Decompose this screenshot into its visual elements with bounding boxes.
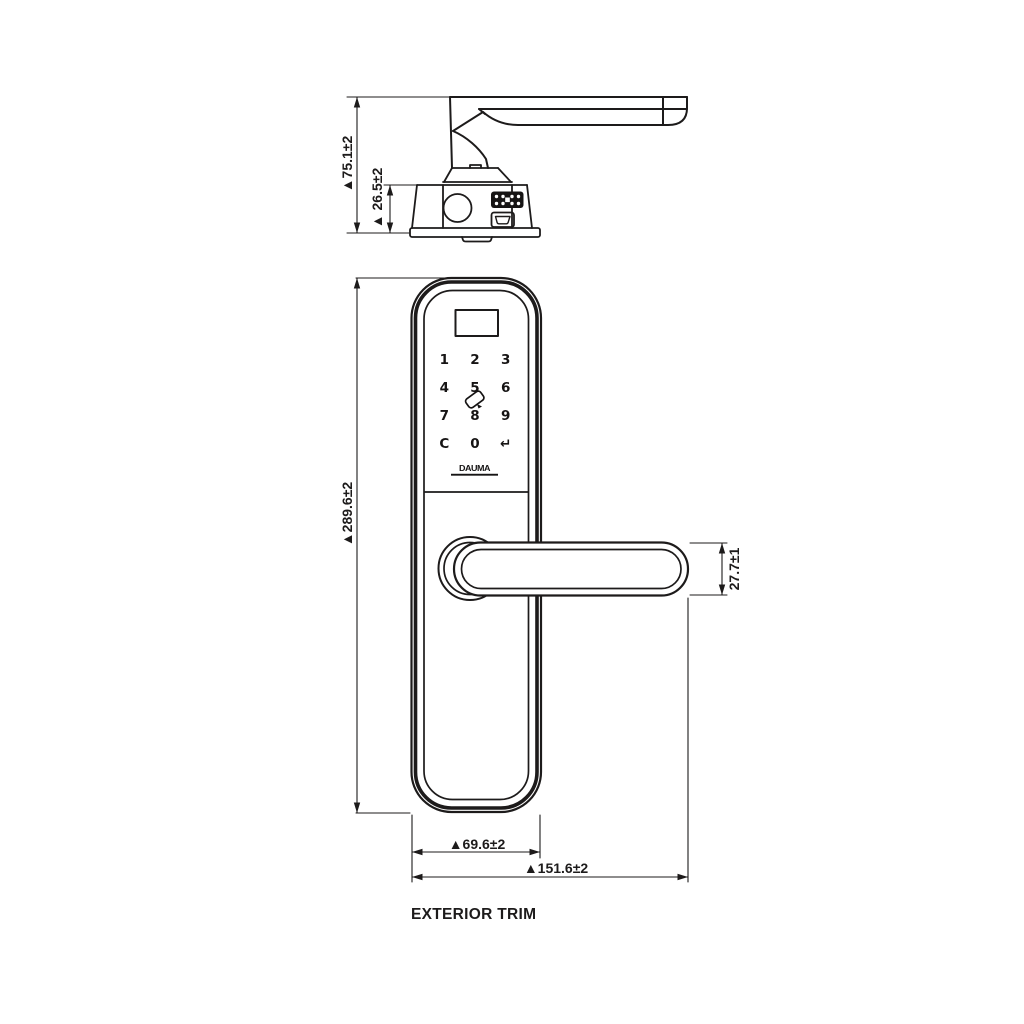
lever-side-profile: [450, 97, 687, 168]
key-3: 3: [490, 346, 521, 374]
dim-line-side-base-height: [384, 185, 416, 233]
key-9: 9: [490, 402, 521, 430]
side-view: [410, 97, 687, 242]
dim-line-side-total-height: [347, 97, 449, 233]
rfid-card-icon: [462, 389, 488, 411]
dimension-body-width: ▲69.6±2: [422, 836, 532, 852]
lever-front: [454, 543, 688, 596]
drawing-title: EXTERIOR TRIM: [411, 906, 536, 924]
dimension-side-base-height: ▲ 26.5±2: [369, 143, 385, 253]
key-1: 1: [429, 346, 460, 374]
key-clear: C: [429, 430, 460, 458]
key-6: 6: [490, 374, 521, 402]
key-2: 2: [460, 346, 491, 374]
key-7: 7: [429, 402, 460, 430]
key-enter-icon: ↵: [490, 430, 521, 458]
connector-block: [491, 192, 524, 209]
technical-drawing-page: 1 2 3 4 5 6 7 8 9 C 0 ↵ DAUMA ▲75.1±2 ▲ …: [0, 0, 1024, 1024]
key-cylinder: [444, 194, 472, 222]
handle-collar: [443, 165, 512, 182]
dim-line-lever-thickness: [690, 543, 727, 595]
dimension-side-total-height: ▲75.1±2: [339, 109, 355, 219]
dimension-total-width: ▲151.6±2: [501, 860, 611, 876]
key-4: 4: [429, 374, 460, 402]
brand-logo: DAUMA: [451, 463, 498, 475]
display-window: [456, 310, 499, 336]
key-0: 0: [460, 430, 491, 458]
usb-port-icon: [492, 213, 515, 228]
dimension-lever-thickness: 27.7±1: [726, 514, 742, 624]
dimension-front-body-height: ▲289.6±2: [339, 459, 355, 569]
